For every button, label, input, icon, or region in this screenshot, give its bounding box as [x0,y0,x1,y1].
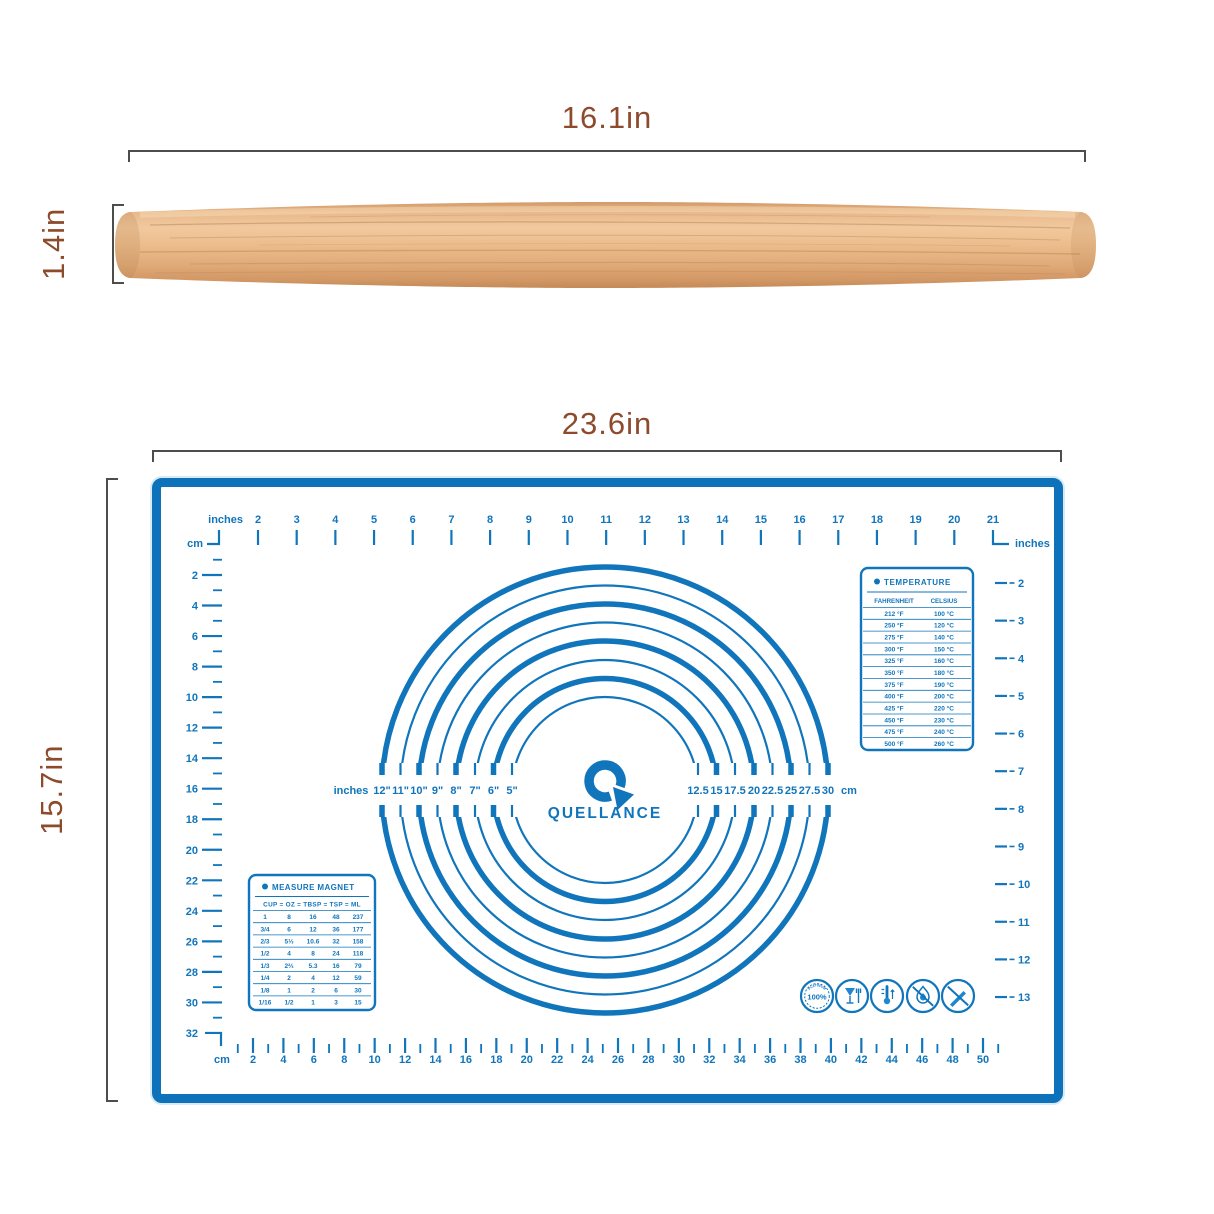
bottom-ruler-unit: cm [214,1054,230,1066]
measure-cell: 8 [287,914,291,921]
measure-cell: 1/8 [260,987,269,994]
pin-length-dimension-line [128,150,1086,162]
temp-cell: 250 °F [884,622,903,630]
ruler-number: 9 [526,514,532,526]
temp-cell: 350 °F [884,669,903,677]
ruler-number: 15 [755,514,767,526]
measure-cell: 24 [332,951,340,958]
pin-end-shade-right [1071,212,1096,278]
temperature-resistant-icon [871,980,903,1012]
left-ruler: 2468101214161820222426283032 [186,560,222,1046]
circle-label-inch: 8" [450,785,461,797]
temp-col-header: CELSIUS [931,598,958,605]
ruler-number: 30 [673,1054,685,1066]
measure-cell: 158 [353,939,364,946]
ruler-number: 18 [186,814,198,826]
temp-table-title: TEMPERATURE [884,578,951,587]
temp-cell: 475 °F [884,728,903,736]
ruler-number: 12 [186,723,198,735]
ruler-number: 16 [186,784,198,796]
measure-cell: 1/16 [259,1000,272,1007]
circle-label-cm: 25 [785,785,797,797]
measure-cell: 2 [311,987,315,994]
ruler-corner [993,530,1009,544]
circle-label-inch: 10" [410,785,427,797]
ruler-number: 46 [916,1054,928,1066]
ruler-number: 4 [1018,653,1025,665]
ruler-number: 14 [186,753,199,765]
ruler-number: 3 [294,514,300,526]
temp-cell: 375 °F [884,681,903,689]
ruler-number: 28 [642,1054,654,1066]
bullet-icon [262,884,268,890]
ruler-number: 17 [832,514,844,526]
safety-icons: PLATINUM 100% [801,980,974,1012]
measure-cell: 30 [354,987,362,994]
ruler-number: 30 [186,997,198,1009]
measure-cell: 79 [354,963,362,970]
temp-cell: 260 °C [934,740,954,748]
measure-cell: 177 [353,926,364,933]
brand-logo: QUELLANCE [548,765,662,822]
mat-width-label: 23.6in [152,406,1062,442]
ruler-number: 6 [311,1054,317,1066]
measure-cell: 4 [311,975,315,982]
ruler-number: 24 [581,1054,594,1066]
measure-cell: 2 [287,975,291,982]
mat-height-bracket [106,478,118,1102]
ruler-number: 32 [703,1054,715,1066]
bottom-ruler: cm24681012141618202224262830323436384042… [214,1038,998,1066]
ruler-number: 9 [1018,841,1024,853]
ruler-number: 36 [764,1054,776,1066]
measure-table-title: MEASURE MAGNET [272,883,355,892]
circle-label-inch: 5" [506,785,517,797]
flame-retardant-icon [907,980,939,1012]
ruler-number: 24 [186,906,199,918]
measure-cell: 6 [287,926,291,933]
circle-label-inch: 7" [469,785,480,797]
ruler-number: 8 [487,514,493,526]
temp-cell: 500 °F [884,740,903,748]
ruler-number: 10 [561,514,573,526]
ruler-number: 5 [371,514,377,526]
ruler-number: 42 [855,1054,867,1066]
measure-cell: 3/4 [260,926,269,933]
ruler-number: 13 [677,514,689,526]
ruler-number: 7 [1018,766,1024,778]
ruler-number: 18 [871,514,883,526]
ruler-number: 22 [186,875,198,887]
circle-label-cm: 20 [748,785,760,797]
measure-cell: 8 [311,951,315,958]
ruler-number: 32 [186,1028,198,1040]
brand-name: QUELLANCE [548,805,662,822]
measure-cell: 1/2 [284,1000,293,1007]
circle-label-cm: 22.5 [762,785,783,797]
ruler-number: 26 [186,936,198,948]
mat-graphics: inches23456789101112131415161718192021in… [161,487,1054,1094]
temp-col-header: FAHRENHEIT [874,598,914,605]
circle-label-cm: 30 [822,785,834,797]
measure-cell: 2/3 [260,939,269,946]
platinum-arc-label: PLATINUM [807,983,827,991]
ruler-number: 8 [192,662,198,674]
ruler-number: 48 [946,1054,958,1066]
temp-table-border [861,568,973,750]
circle-label-inch: 11" [392,785,409,797]
ruler-number: 50 [977,1054,989,1066]
measure-cell: 48 [332,914,340,921]
circle-label-inch: 9" [432,785,443,797]
temperature-table: TEMPERATUREFAHRENHEITCELSIUS212 °F100 °C… [861,568,973,750]
ruler-number: 8 [341,1054,347,1066]
food-safe-glass-fork-icon [836,980,868,1012]
ruler-number: 13 [1018,992,1030,1004]
ruler-number: 44 [886,1054,899,1066]
ruler-number: 10 [186,692,198,704]
temp-cell: 120 °C [934,622,954,630]
temp-cell: 230 °C [934,716,954,724]
ruler-number: 8 [1018,804,1024,816]
circle-label-inch: 12" [373,785,390,797]
measure-cell: 1/4 [260,975,269,982]
ruler-number: 2 [1018,578,1024,590]
temp-cell: 240 °C [934,728,954,736]
rolling-pin [110,190,1110,300]
pin-length-label: 16.1in [128,100,1086,136]
ruler-number: 10 [1018,879,1030,891]
measure-cell: 16 [332,963,340,970]
measure-cell: 6 [334,987,338,994]
ruler-number: 4 [280,1054,287,1066]
top-ruler: inches23456789101112131415161718192021in… [187,514,1050,550]
ruler-number: 12 [1018,954,1030,966]
circle-label-inch: 6" [488,785,499,797]
measure-cell: 1 [263,914,267,921]
measure-cell: 1 [311,1000,315,1007]
circles-unit-inches: inches [334,785,369,797]
top-ruler-unit: inches [208,514,243,526]
ruler-number: 4 [192,601,199,613]
label-band [335,763,561,817]
measure-cell: 12 [309,926,317,933]
measure-cell: 3 [334,1000,338,1007]
circle-label-cm: 15 [710,785,722,797]
measure-cell: 10.6 [307,939,320,946]
measure-cell: 4 [287,951,291,958]
ruler-number: 20 [948,514,960,526]
ruler-number: 6 [1018,729,1024,741]
ruler-number: 7 [448,514,454,526]
ruler-number: 4 [332,514,339,526]
circles-unit-cm: cm [841,785,857,797]
temp-cell: 400 °F [884,693,903,701]
measure-cell: 1 [287,987,291,994]
ruler-number: 38 [794,1054,806,1066]
temp-cell: 190 °C [934,681,954,689]
top-ruler-unit-cm: cm [187,538,203,550]
ruler-number: 14 [716,514,729,526]
measure-cell: 1/2 [260,951,269,958]
ruler-number: 2 [192,570,198,582]
ruler-number: 22 [551,1054,563,1066]
measure-cell: 59 [354,975,362,982]
circle-label-cm: 12.5 [687,785,708,797]
ruler-number: 2 [250,1054,256,1066]
temp-cell: 140 °C [934,633,954,641]
ruler-number: 6 [192,631,198,643]
mat-width-dimension-line [152,450,1062,462]
ruler-number: 10 [369,1054,381,1066]
ruler-number: 18 [490,1054,502,1066]
ruler-number: 12 [399,1054,411,1066]
ruler-number: 26 [612,1054,624,1066]
platinum-100-icon: PLATINUM 100% [801,980,833,1012]
temp-cell: 300 °F [884,645,903,653]
pin-end-shade-left [115,212,140,278]
pin-diameter-label: 1.4in [36,199,72,289]
ruler-number: 28 [186,967,198,979]
ruler-number: 20 [186,845,198,857]
measure-cell: 5⅓ [284,939,294,946]
ruler-number: 6 [410,514,416,526]
ruler-number: 2 [255,514,261,526]
circle-label-cm: 17.5 [724,785,745,797]
temp-cell: 200 °C [934,693,954,701]
no-knife-icon [942,980,974,1012]
ruler-number: 19 [910,514,922,526]
top-ruler-unit-right: inches [1015,538,1050,550]
measure-cell: 12 [332,975,340,982]
ruler-number: 5 [1018,691,1024,703]
pastry-mat: inches23456789101112131415161718192021in… [152,478,1063,1103]
temp-cell: 150 °C [934,645,954,653]
measure-col-header: CUP = OZ = TBSP = TSP = ML [263,902,361,909]
ruler-number: 11 [600,514,612,526]
measure-cell: 16 [309,914,317,921]
ruler-corner [205,1033,221,1046]
ruler-number: 16 [460,1054,472,1066]
ruler-number: 3 [1018,616,1024,628]
temp-cell: 425 °F [884,704,903,712]
ruler-number: 21 [987,514,999,526]
ruler-number: 40 [825,1054,837,1066]
ruler-number: 16 [793,514,805,526]
bullet-icon [874,579,880,585]
measure-cell: 36 [332,926,340,933]
measure-cell: 2⅔ [284,963,294,970]
platinum-value: 100% [807,993,827,1002]
ruler-number: 20 [521,1054,533,1066]
temp-cell: 180 °C [934,669,954,677]
measure-cell: 1/3 [260,963,269,970]
temp-cell: 160 °C [934,657,954,665]
measure-cell: 118 [353,951,364,958]
temp-cell: 212 °F [884,610,903,618]
measure-cell: 15 [354,1000,362,1007]
temp-cell: 220 °C [934,704,954,712]
ruler-corner [207,530,219,544]
temp-cell: 275 °F [884,633,903,641]
ruler-number: 11 [1018,917,1030,929]
measure-cell: 32 [332,939,340,946]
circle-label-cm: 27.5 [799,785,820,797]
product-dimension-diagram: 16.1in 1.4in [0,0,1214,1214]
right-ruler: 2345678910111213 [995,578,1030,1004]
temp-cell: 100 °C [934,610,954,618]
measure-cell: 5.3 [308,963,317,970]
temp-cell: 450 °F [884,716,903,724]
measure-cell: 237 [353,914,364,921]
measure-table: MEASURE MAGNETCUP = OZ = TBSP = TSP = ML… [249,875,375,1010]
mat-height-label: 15.7in [34,700,70,880]
ruler-number: 34 [734,1054,747,1066]
ruler-number: 14 [429,1054,442,1066]
ruler-number: 12 [639,514,651,526]
temp-cell: 325 °F [884,657,903,665]
